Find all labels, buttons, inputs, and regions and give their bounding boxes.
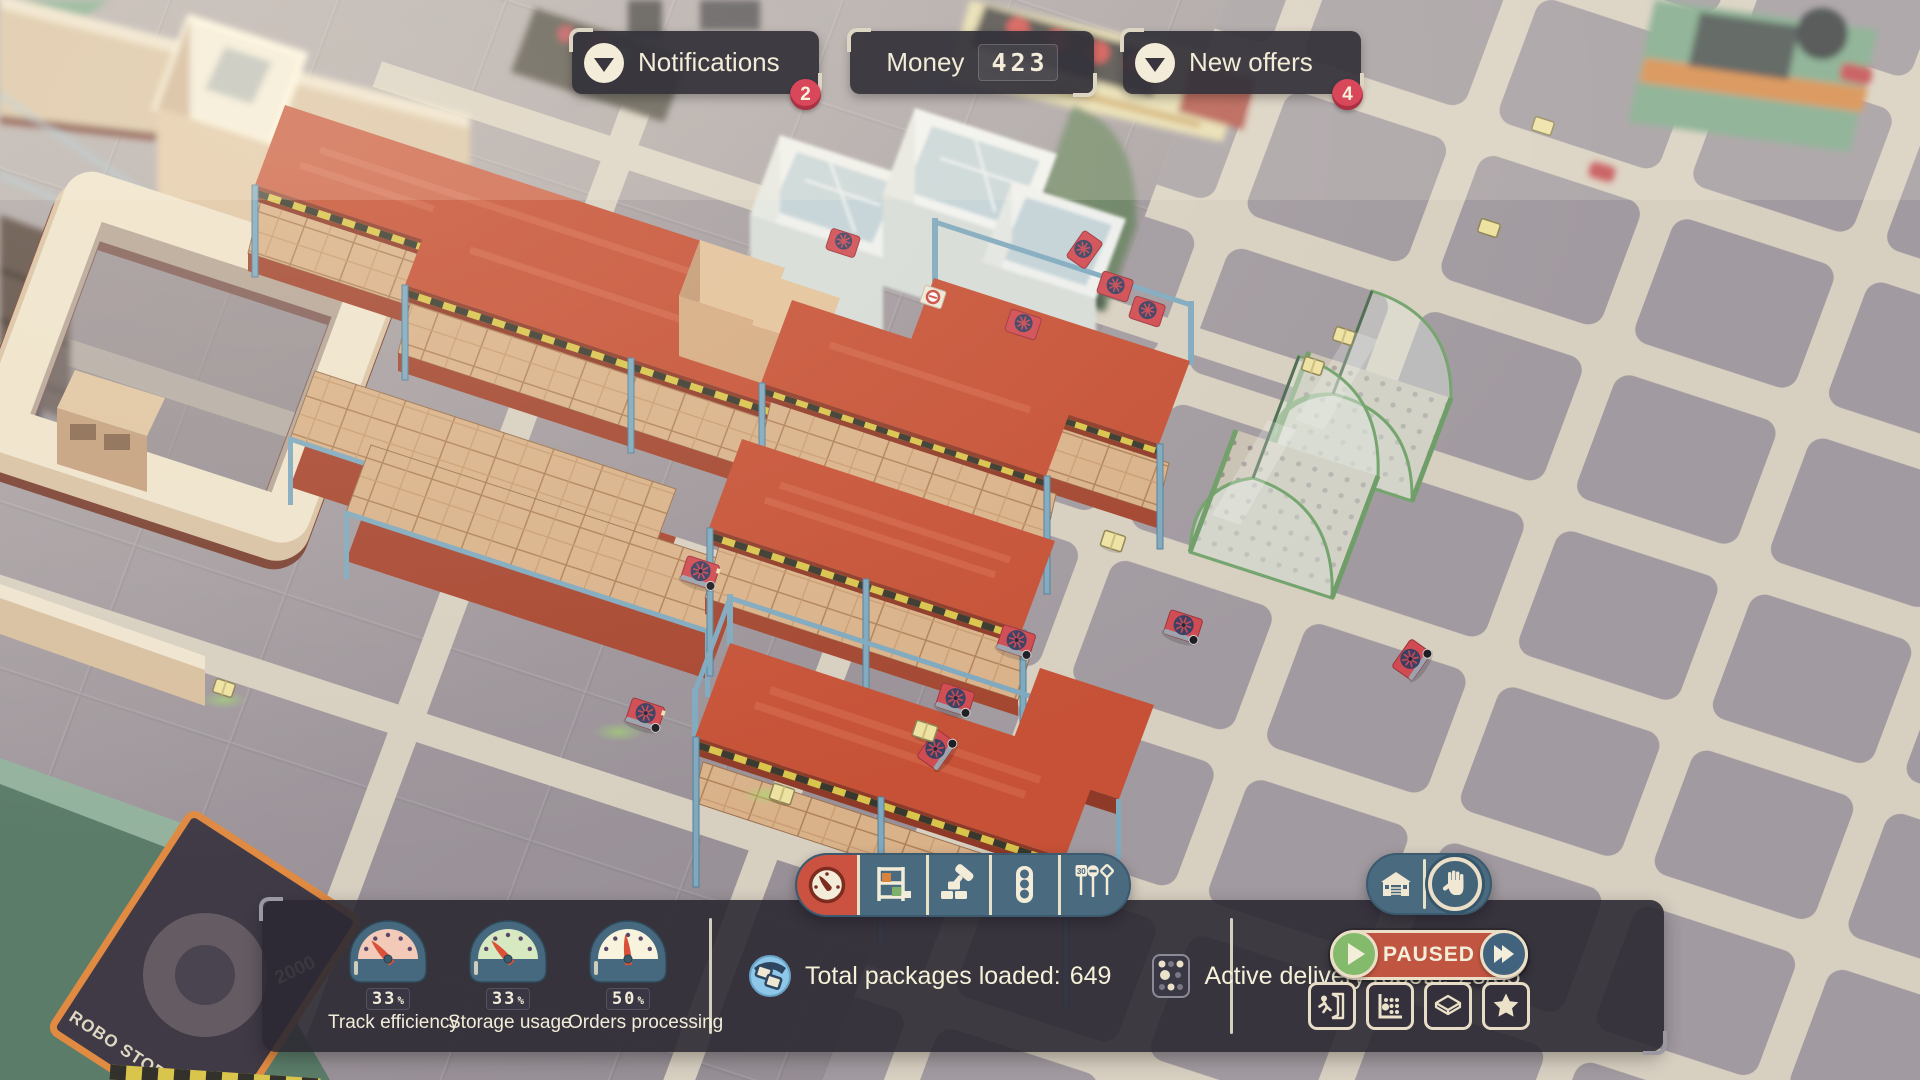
gauge-orders-processing: 50% Orders processing: [568, 912, 688, 1034]
packages-icon: [748, 954, 792, 998]
gauge-value-badge: 33%: [486, 988, 530, 1010]
speed-gauge-icon: [805, 863, 849, 907]
floor-tile-icon: [1433, 991, 1463, 1021]
build-hammer-icon: [937, 863, 981, 907]
star-icon: [1491, 991, 1521, 1021]
efficiency-gauges: 33% Track efficiency 33% Storage usage: [328, 912, 688, 1034]
gauge-label: Orders processing: [568, 1012, 688, 1034]
tool-road-signs-button[interactable]: 30: [1061, 855, 1129, 915]
gauge-value-badge: 50%: [606, 988, 650, 1010]
warehouse-view-button[interactable]: [1368, 869, 1423, 899]
tool-storage-button[interactable]: [860, 855, 929, 915]
down-arrow-circle-icon: [584, 43, 624, 83]
play-icon: [1348, 943, 1365, 965]
stop-hand-button[interactable]: [1428, 857, 1482, 911]
packages-loaded-value: 649: [1070, 962, 1112, 991]
traffic-light-icon: [1003, 863, 1047, 907]
tool-build-button[interactable]: [929, 855, 992, 915]
tool-traffic-button[interactable]: [992, 855, 1062, 915]
playback-control[interactable]: PAUSED: [1330, 930, 1528, 980]
statistics-button[interactable]: [1366, 982, 1414, 1030]
new-offers-badge: 4: [1332, 79, 1363, 110]
favorites-button[interactable]: [1482, 982, 1530, 1030]
view-controls: [1366, 853, 1492, 915]
play-button[interactable]: [1330, 930, 1378, 978]
gauge-track-efficiency: 33% Track efficiency: [328, 912, 448, 1034]
gauge-label: Storage usage: [448, 1012, 568, 1034]
money-label: Money: [886, 47, 964, 78]
gauge-dial-icon: [466, 912, 550, 986]
packages-loaded-label: Total packages loaded:: [805, 962, 1061, 991]
notifications-button[interactable]: Notifications 2: [572, 31, 819, 94]
down-arrow-circle-icon: [1135, 43, 1175, 83]
gauge-label: Track efficiency: [328, 1012, 448, 1034]
pill-divider: [1423, 859, 1426, 909]
stop-hand-icon: [1440, 869, 1470, 899]
floor-tiles-button[interactable]: [1424, 982, 1472, 1030]
notifications-label: Notifications: [638, 47, 780, 78]
robots-icon: [1151, 953, 1191, 999]
fast-forward-button[interactable]: [1480, 930, 1528, 978]
notifications-badge: 2: [790, 79, 821, 110]
money-display: Money 423: [850, 31, 1094, 94]
warehouse-icon: [1379, 869, 1413, 899]
stats-chart-icon: [1375, 991, 1405, 1021]
gauge-dial-icon: [346, 912, 430, 986]
game-screen: ROBO STORINATOR 2000 Notifications 2 Mon…: [0, 0, 1920, 1080]
speed-sign-label: 30: [1077, 867, 1086, 876]
road-signs-icon: 30: [1073, 863, 1117, 907]
gauge-dial-icon: [586, 912, 670, 986]
exit-door-icon: [1317, 991, 1347, 1021]
menu-buttons: [1308, 982, 1530, 1030]
exit-button[interactable]: [1308, 982, 1356, 1030]
storage-shelf-icon: [871, 863, 915, 907]
money-value: 423: [978, 44, 1057, 81]
new-offers-label: New offers: [1189, 47, 1313, 78]
new-offers-button[interactable]: New offers 4: [1123, 31, 1361, 94]
build-toolbar: 30: [795, 853, 1131, 917]
gauge-value-badge: 33%: [366, 988, 410, 1010]
gauge-storage-usage: 33% Storage usage: [448, 912, 568, 1034]
tool-dashboard-button[interactable]: [797, 855, 860, 915]
